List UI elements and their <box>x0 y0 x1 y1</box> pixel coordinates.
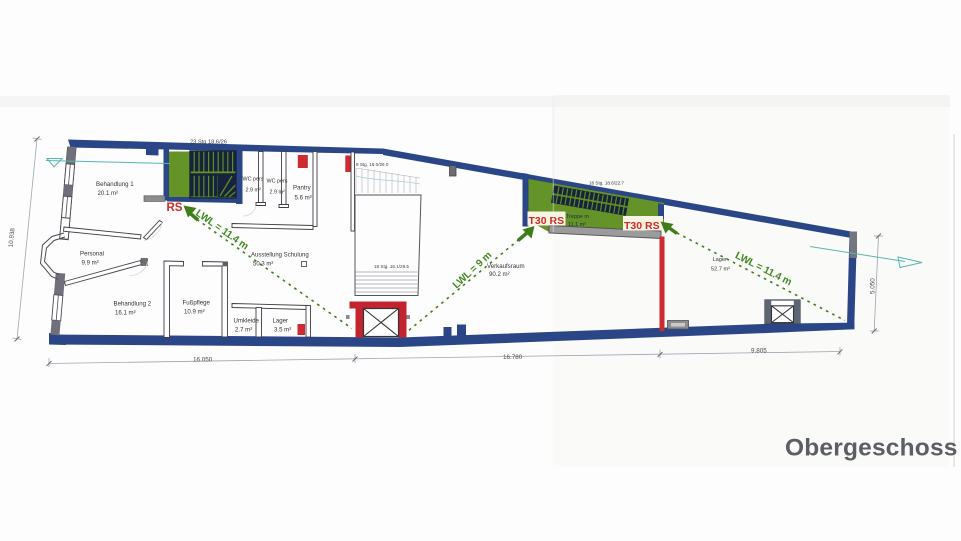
svg-text:16.050: 16.050 <box>193 357 213 364</box>
svg-text:20.1 m²: 20.1 m² <box>98 190 119 197</box>
svg-text:16.780: 16.780 <box>503 354 523 361</box>
svg-text:Fußpflege: Fußpflege <box>183 300 211 307</box>
svg-text:52.7 m²: 52.7 m² <box>711 267 730 273</box>
svg-text:90.2 m²: 90.2 m² <box>489 271 510 278</box>
svg-text:18 Stg. 16.1/29.5: 18 Stg. 16.1/29.5 <box>374 264 409 269</box>
svg-text:3.5 m²: 3.5 m² <box>274 327 291 334</box>
svg-text:8 Stg. 16 0/26 0: 8 Stg. 16 0/26 0 <box>356 162 389 167</box>
svg-text:Behandlung 1: Behandlung 1 <box>96 181 134 188</box>
svg-text:50.3 m²: 50.3 m² <box>253 262 273 268</box>
svg-text:Pantry: Pantry <box>293 185 312 192</box>
svg-text:9.805: 9.805 <box>751 348 767 355</box>
svg-text:T30 RS: T30 RS <box>624 220 660 232</box>
svg-text:18 Stg. 18.6/22.7: 18 Stg. 18.6/22.7 <box>589 181 624 186</box>
svg-text:Lager: Lager <box>273 318 289 325</box>
svg-text:Obergeschoss: Obergeschoss <box>785 435 958 462</box>
svg-text:23 Stg 18.6/26: 23 Stg 18.6/26 <box>190 140 227 146</box>
svg-text:9.9 m²: 9.9 m² <box>82 260 99 267</box>
svg-text:Treppe m: Treppe m <box>566 214 589 220</box>
svg-text:WC pers: WC pers <box>267 179 288 185</box>
svg-text:10.9 m²: 10.9 m² <box>184 309 205 316</box>
svg-text:Personal: Personal <box>80 251 104 258</box>
svg-text:2.9 m²: 2.9 m² <box>246 188 261 194</box>
svg-text:Ausstellung Schulung: Ausstellung Schulung <box>251 253 309 259</box>
svg-text:T30 RS: T30 RS <box>529 215 565 227</box>
svg-text:Umkleide: Umkleide <box>234 318 260 325</box>
svg-text:WC pers: WC pers <box>243 177 264 183</box>
svg-text:Verkaufsraum: Verkaufsraum <box>487 263 525 270</box>
svg-text:5.6 m²: 5.6 m² <box>295 195 312 202</box>
svg-text:16.1 m²: 16.1 m² <box>115 310 136 317</box>
svg-text:RS: RS <box>167 202 183 214</box>
svg-text:5.050: 5.050 <box>870 278 877 294</box>
svg-text:2.9 m²: 2.9 m² <box>270 190 285 196</box>
svg-text:2.7 m²: 2.7 m² <box>235 327 252 334</box>
svg-text:Behandlung 2: Behandlung 2 <box>114 301 152 308</box>
svg-text:Lager: Lager <box>713 257 727 263</box>
